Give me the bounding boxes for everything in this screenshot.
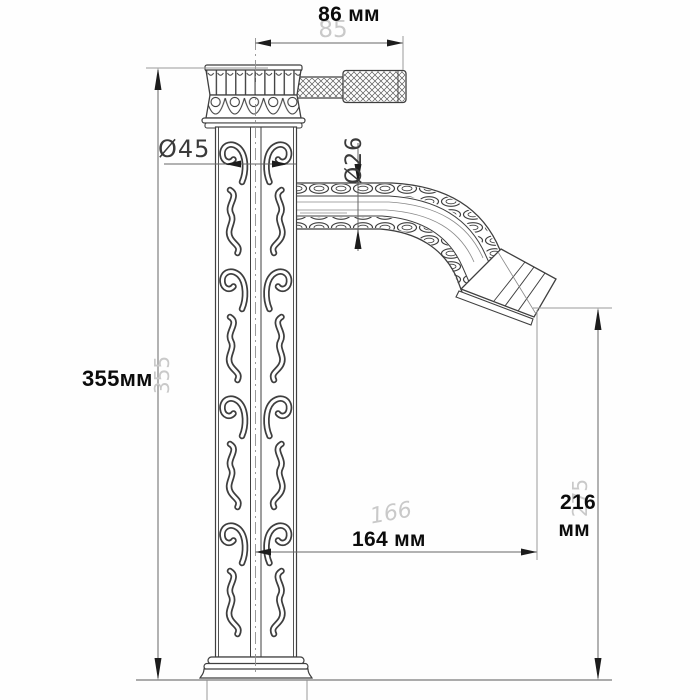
crown-cap xyxy=(202,65,305,128)
handle-knurled xyxy=(296,71,406,103)
dim-spout-diameter-label: Ø26 xyxy=(342,129,364,191)
pedestal-base xyxy=(200,657,312,700)
dim-spout-height-unit: мм xyxy=(546,518,590,542)
dim-top-width-label: 86 мм xyxy=(294,3,404,27)
technical-drawing-page: 85 86 мм 355 355мм Ø45 Ø26 166 164 мм 27… xyxy=(0,0,700,700)
dimension-lines xyxy=(136,36,612,680)
ghost-height: 355 xyxy=(150,345,170,405)
dim-reach-label: 164 мм xyxy=(352,528,426,552)
column-shaft xyxy=(216,127,297,657)
dim-spout-height-value: 216 xyxy=(552,491,596,515)
dim-height-label: 355мм xyxy=(82,366,153,392)
faucet-technical-drawing xyxy=(0,0,700,700)
dim-column-diameter-label: Ø45 xyxy=(158,135,210,163)
